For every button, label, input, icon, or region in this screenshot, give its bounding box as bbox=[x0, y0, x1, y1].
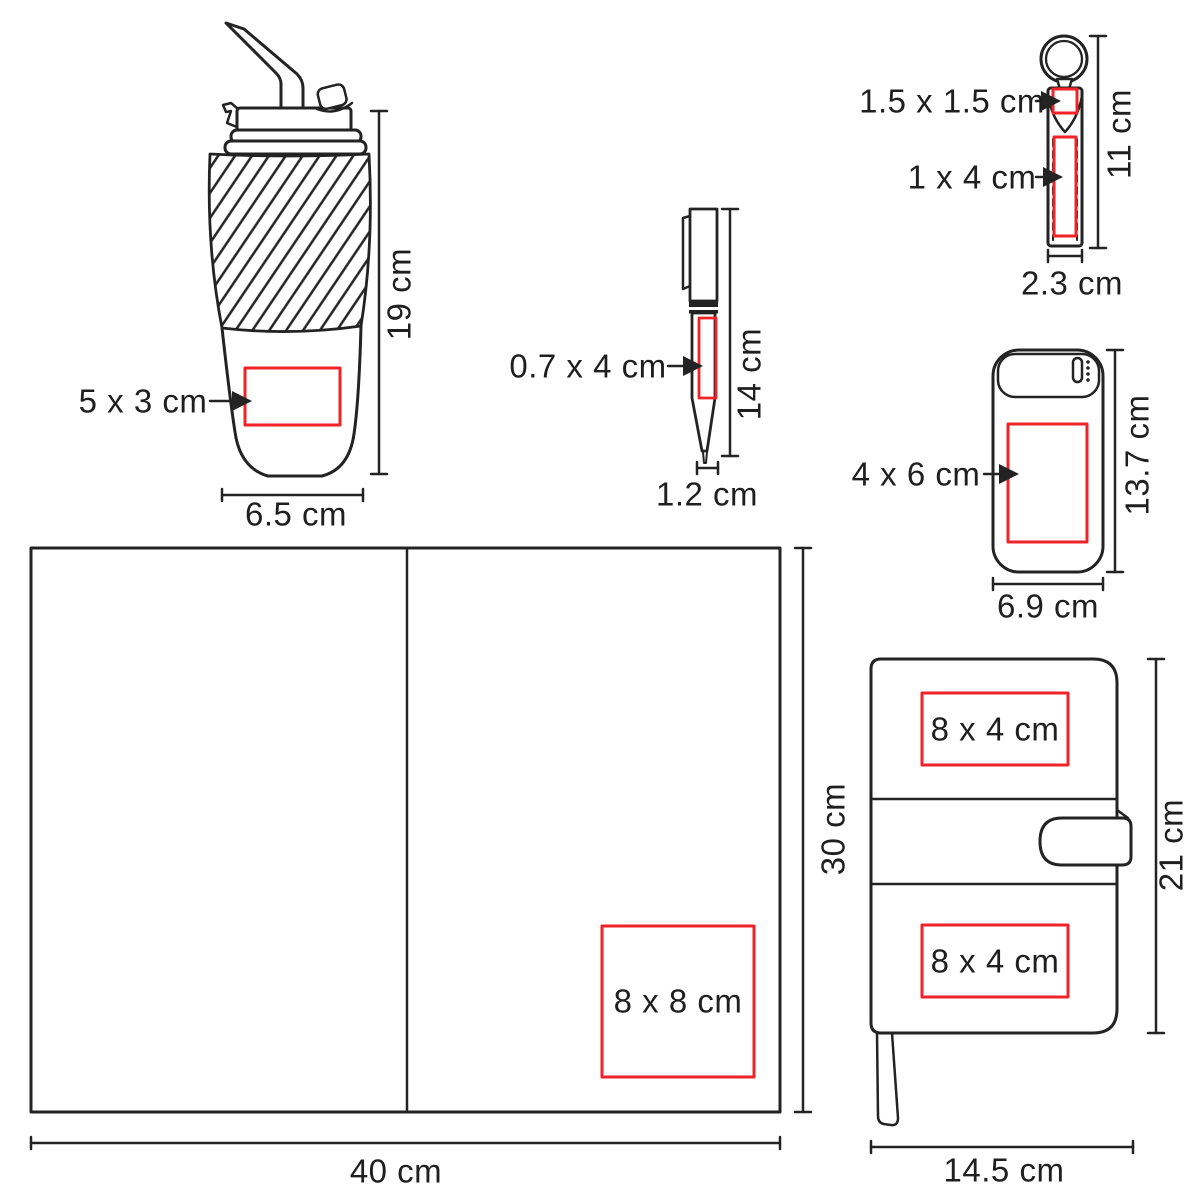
folder-height-label: 30 cm bbox=[817, 783, 850, 875]
notebook-clasp bbox=[1040, 818, 1131, 865]
pen-width-dim bbox=[697, 462, 718, 474]
notebook-ribbon bbox=[877, 1033, 898, 1125]
pen-lower-barrel bbox=[692, 313, 715, 451]
notebook-print-area-top-label: 8 x 4 cm bbox=[931, 713, 1060, 746]
notebook-width-label: 14.5 cm bbox=[944, 1154, 1065, 1187]
keychain-height-label: 11 cm bbox=[1103, 89, 1136, 179]
powerbank-height-label: 13.7 cm bbox=[1121, 395, 1154, 516]
folder-height-dim bbox=[795, 548, 811, 1112]
notebook-height-label: 21 cm bbox=[1155, 799, 1188, 891]
notebook-print-area-bottom-label: 8 x 4 cm bbox=[931, 945, 1060, 978]
keychain-print-area-strap-label: 1 x 4 cm bbox=[908, 161, 1037, 194]
powerbank-width-label: 6.9 cm bbox=[997, 590, 1099, 623]
tumbler-straw bbox=[226, 23, 303, 109]
tumbler-grip bbox=[209, 154, 370, 332]
spec-sheet: 5 x 3 cm 19 cm 6.5 cm 0.7 x 4 cm 14 cm 1… bbox=[0, 0, 1200, 1200]
pen-print-area-label: 0.7 x 4 cm bbox=[509, 350, 666, 383]
tumbler-width-label: 6.5 cm bbox=[245, 498, 347, 531]
keychain-width-dim bbox=[1048, 250, 1082, 262]
keychain-width-label: 2.3 cm bbox=[1021, 267, 1123, 300]
tumbler-height-label: 19 cm bbox=[383, 248, 416, 340]
pen-band-1 bbox=[689, 302, 718, 307]
tumbler-drawing bbox=[209, 23, 387, 501]
folder-outline bbox=[31, 548, 780, 1112]
pen-tip bbox=[703, 452, 707, 463]
folder-drawing bbox=[31, 548, 811, 1149]
keychain-ring-outer bbox=[1041, 36, 1087, 82]
folder-print-area-label: 8 x 8 cm bbox=[614, 985, 743, 1018]
pen-height-label: 14 cm bbox=[733, 328, 766, 420]
tumbler-lid-tab bbox=[223, 103, 237, 127]
keychain-drawing bbox=[1036, 36, 1106, 262]
keychain-print-area-top-label: 1.5 x 1.5 cm bbox=[859, 85, 1045, 118]
pen-drawing bbox=[668, 209, 738, 474]
tumbler-print-area-box bbox=[245, 368, 340, 425]
pen-upper-barrel bbox=[690, 209, 717, 301]
powerbank-drawing bbox=[984, 350, 1123, 590]
folder-width-label: 40 cm bbox=[350, 1155, 442, 1188]
powerbank-print-area-label: 4 x 6 cm bbox=[852, 458, 981, 491]
keychain-ring-inner bbox=[1046, 41, 1082, 77]
tumbler-rim-lower bbox=[225, 141, 366, 154]
pen-width-label: 1.2 cm bbox=[656, 478, 758, 511]
tumbler-spout bbox=[317, 83, 348, 110]
folder-width-dim bbox=[31, 1137, 780, 1149]
tumbler-print-area-label: 5 x 3 cm bbox=[79, 385, 208, 418]
